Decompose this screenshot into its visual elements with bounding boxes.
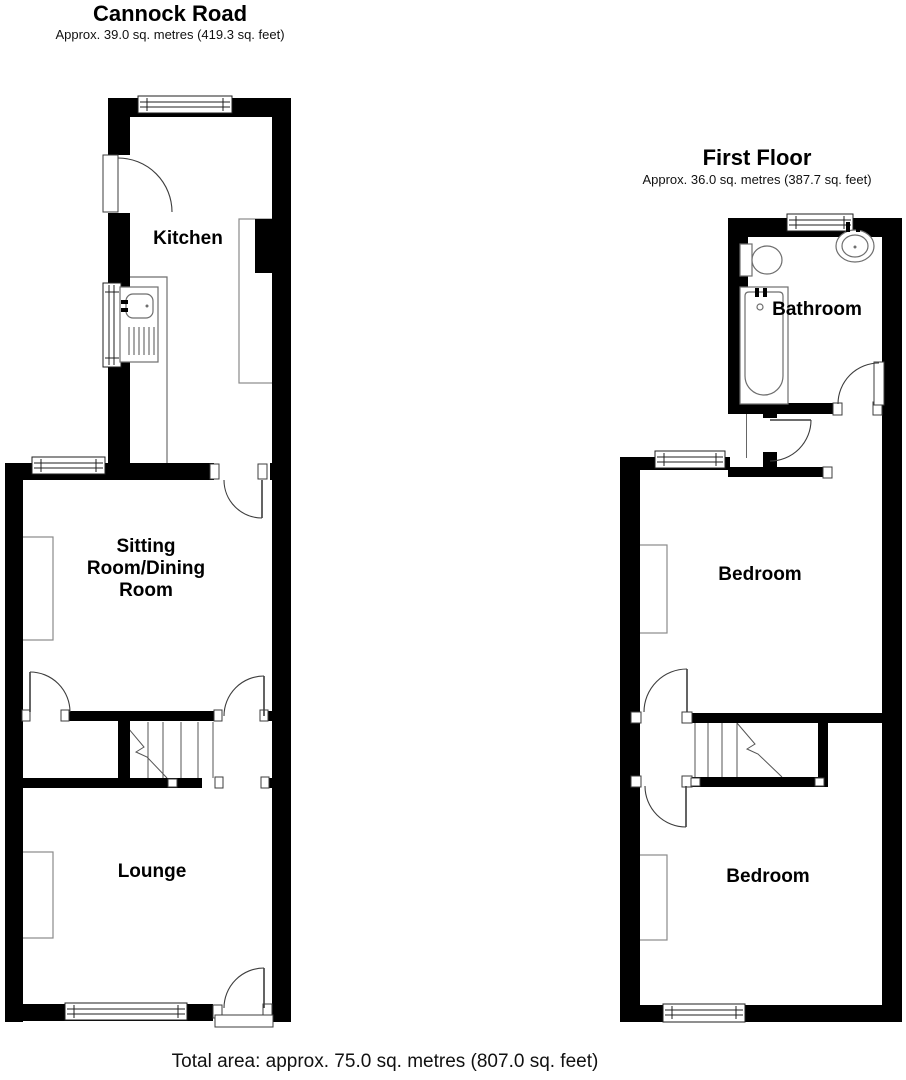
lounge-entrance-door-icon <box>215 968 273 1027</box>
bathroom-window-icon <box>787 214 853 231</box>
toilet-icon <box>740 244 782 276</box>
floorplan-page: Cannock Road Approx. 39.0 sq. metres (41… <box>0 0 906 1080</box>
first-floor-area-note: Approx. 36.0 sq. metres (387.7 sq. feet) <box>642 172 871 187</box>
kitchen-side-window-icon <box>103 283 121 367</box>
bedroom-front-door-icon <box>644 669 687 712</box>
lounge-window-icon <box>65 1003 187 1020</box>
ground-floor-area-note: Approx. 39.0 sq. metres (419.3 sq. feet) <box>55 27 284 42</box>
first-floor-staircase-icon <box>695 723 782 777</box>
sitting-room-window-icon <box>32 457 105 474</box>
sitting-room-label-line3: Room <box>87 580 205 602</box>
sitting-room-label: Sitting Room/Dining Room <box>87 536 205 602</box>
total-area-note: Total area: approx. 75.0 sq. metres (807… <box>172 1051 599 1073</box>
sitting-room-left-door-icon <box>30 672 70 712</box>
kitchen-side-door-icon <box>103 155 172 212</box>
sitting-room-label-line2: Room/Dining <box>87 558 205 580</box>
kitchen-sink-icon <box>120 287 158 362</box>
bedroom-back-window-icon <box>663 1004 745 1022</box>
kitchen-to-sitting-door-icon <box>224 480 262 518</box>
lounge-furniture-icon <box>20 852 53 938</box>
ground-staircase-icon <box>123 722 213 778</box>
sitting-room-right-door-icon <box>224 676 264 716</box>
ground-floor-title: Cannock Road <box>93 1 247 27</box>
lounge-label: Lounge <box>118 861 187 883</box>
bedroom-front-window-icon <box>655 451 725 468</box>
kitchen-label: Kitchen <box>153 228 223 250</box>
first-floor-title: First Floor <box>703 145 812 171</box>
bedroom-front-label: Bedroom <box>718 564 801 586</box>
bathroom-door-icon <box>838 362 884 405</box>
kitchen-top-window-icon <box>138 96 232 113</box>
bathroom-label: Bathroom <box>772 299 862 321</box>
bedroom-back-label: Bedroom <box>726 866 809 888</box>
sitting-room-label-line1: Sitting <box>87 536 205 558</box>
first-floor-plan <box>620 214 902 1022</box>
sitting-room-furniture-icon <box>20 537 53 640</box>
bedroom-back-door-icon <box>645 786 686 827</box>
